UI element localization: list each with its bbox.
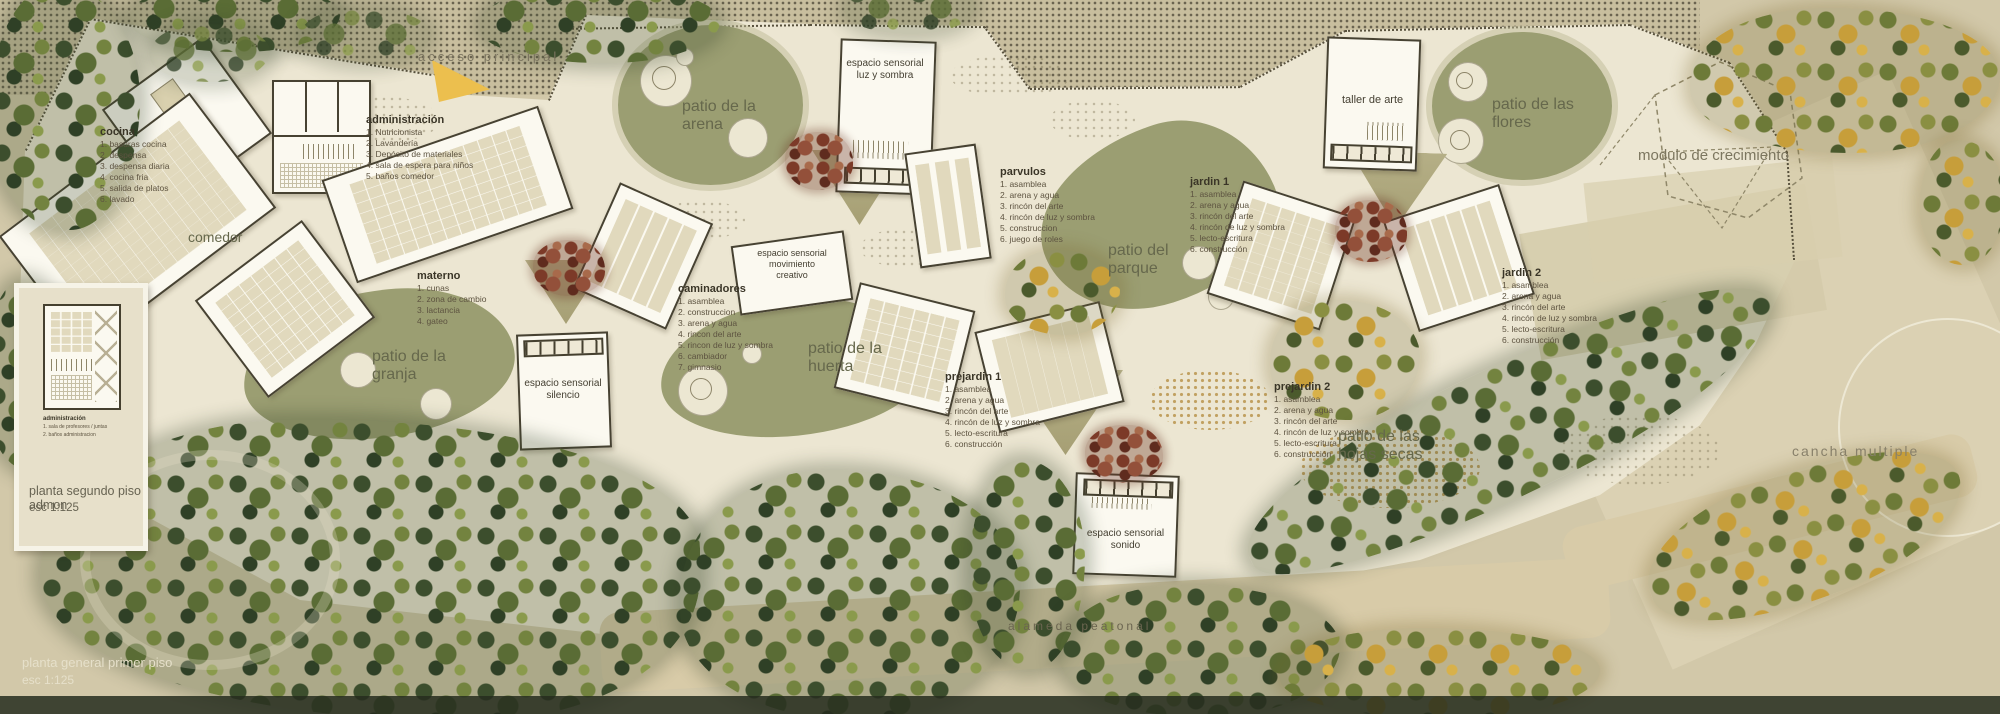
bottom-border-strip [0,696,2000,714]
legend-item: 5. rincon de luz y sombra [678,340,828,351]
inset-banos [51,375,92,399]
legend-item: 4. gateo [417,316,567,327]
pebble [420,388,452,420]
inset-second-floor-plan: administración 1. sala de profesores / j… [14,283,148,551]
label-sens-sonido: espacio sensorial sonido [1078,528,1173,552]
legend-item: 6. construcción [1190,244,1340,255]
legend-item: 3. rincón del arte [1502,302,1652,313]
legend-item: 3. rincón del arte [945,406,1095,417]
inset-stair [51,359,92,371]
legend-item: 2. arena y agua [1190,200,1340,211]
pebble [340,352,376,388]
service-cells [1330,143,1412,163]
pebble [690,378,712,400]
ground-stipple [1050,100,1135,140]
legend-title: parvulos [1000,166,1150,178]
stair-strip [1092,496,1152,510]
tree-grove-autumn [1690,8,2000,153]
label-sens-silencio: espacio sensorial silencio [518,378,608,402]
legend-item: 2. construccion [678,307,828,318]
label-taller-de-arte: taller de arte [1342,94,1403,106]
legend-item: 2. Lavandería [366,138,516,149]
legend-item: 1. asamblea [945,384,1095,395]
legend-item: 3. rincón del arte [1274,416,1424,427]
label-cancha-multiple: cancha multiple [1792,444,1919,460]
tree-grove [680,470,1020,714]
legend-parvulos: parvulos 1. asamblea 2. arena y agua 3. … [1000,166,1150,245]
site-plan-canvas: acceso principal alameda peatonal cancha… [0,0,2000,714]
legend-prejardin-1: prejardin 1 1. asamblea 2. arena y agua … [945,371,1095,450]
label-patio-granja: patio de la granja [372,348,446,384]
legend-title: cocina [100,126,250,138]
building-espacio-sensorial-sonido [1072,472,1179,578]
dry-leaves-scatter [1150,370,1270,430]
red-tree [1085,425,1163,483]
legend-jardin-1: jardin 1 1. asamblea 2. arena y agua 3. … [1190,176,1340,255]
label-patio-parque: patio del parque [1108,242,1169,278]
legend-item: 1. cunas [417,283,567,294]
pebble [1450,130,1470,150]
label-patio-huerta: patio de la huerta [808,340,882,376]
legend-item: 6. cambiador [678,351,828,362]
legend-title: administración [366,114,516,126]
legend-item: 2. arena y agua [1000,190,1150,201]
label-sens-mov-creativo: espacio sensorial movimiento creativo [742,248,842,280]
drawing-title: planta general primer piso [22,655,172,670]
legend-title: materno [417,270,567,282]
parvulos-furniture [915,158,981,254]
label-comedor: comedor [188,230,242,246]
label-modulo-crecimiento: modulo de crecimiento [1638,148,1789,165]
legend-item: 2. arena y agua [945,395,1095,406]
legend-item: 3. rincón del arte [1000,201,1150,212]
legend-item: 6. construcción [1502,335,1652,346]
pebble [1456,72,1473,89]
label-sens-luz-sombra: espacio sensorial luz y sombra [835,58,935,82]
label-patio-arena: patio de la arena [682,98,756,134]
pebble [652,66,676,90]
tree-grove-autumn [1005,250,1120,335]
legend-item: 5. baños comedor [366,171,516,182]
legend-item: 5. construccion [1000,223,1150,234]
legend-item: 6. construcción [945,439,1095,450]
legend-item: 4. rincón de luz y sombra [1190,222,1340,233]
legend-item: 5. lecto-escritura [1190,233,1340,244]
label-patio-hojas-secas: patio de las hojas secas [1338,428,1423,464]
label-patio-flores: patio de las flores [1492,96,1574,132]
label-acceso-principal: acceso principal [418,50,559,65]
red-tree [785,132,853,190]
legend-item: 2. arena y agua [1502,291,1652,302]
legend-item: 4. cocina fria [100,172,250,183]
legend-item: 5. salida de platos [100,183,250,194]
stair-strip [1366,122,1403,141]
legend-materno: materno 1. cunas 2. zona de cambio 3. la… [417,270,567,327]
legend-item: 2. arena y agua [1274,405,1424,416]
inset-legend-item: 1. sala de profesores / juntas [43,424,107,431]
stair-strip [852,140,908,160]
legend-item: 3. lactancia [417,305,567,316]
ground-stipple [950,55,1070,97]
jardin2-furniture [1400,201,1517,315]
inset-caption-scale: esc 1:125 [29,502,79,514]
inset-legend-title: administración [43,416,86,422]
legend-item: 1. asamblea [1190,189,1340,200]
legend-item: 5. lecto-escritura [1502,324,1652,335]
legend-title: caminadores [678,283,828,295]
legend-item: 7. gimnasio [678,362,828,373]
legend-item: 4. rincon del arte [678,329,828,340]
inset-cross-hatch [95,308,117,402]
tree-grove [300,8,430,63]
legend-item: 4. rincón de luz y sombra [1000,212,1150,223]
legend-item: 1. asamblea [1000,179,1150,190]
legend-caminadores: caminadores 1. asamblea 2. construccion … [678,283,828,373]
legend-item: 1. basuras cocina [100,139,250,150]
legend-item: 4. rincón de luz y sombra [1502,313,1652,324]
legend-administracion: administración 1. Nutricionista 2. Lavan… [366,114,516,182]
legend-title: jardin 2 [1502,267,1652,279]
legend-item: 1. Nutricionista [366,127,516,138]
drawing-scale: esc 1:125 [22,673,172,687]
inset-furniture [51,312,92,352]
legend-item: 3. rincón del arte [1190,211,1340,222]
service-cells [523,338,603,358]
legend-item: 1. asamblea [1502,280,1652,291]
legend-jardin-2: jardin 2 1. asamblea 2. arena y agua 3. … [1502,267,1652,346]
legend-item: 1. asamblea [678,296,828,307]
legend-cocina: cocina 1. basuras cocina 2. despensa 3. … [100,126,250,205]
tree-grove [150,24,270,82]
legend-item: 4. sala de espera para niños [366,160,516,171]
legend-item: 3. despensa diaria [100,161,250,172]
drawing-title-block: planta general primer piso esc 1:125 [22,655,172,687]
legend-title: jardin 1 [1190,176,1340,188]
tree-grove-autumn [1920,140,2000,265]
inset-legend-item: 2. baños administracion [43,432,96,439]
label-alameda-peatonal: alameda peatonal [1008,620,1151,633]
legend-item: 2. zona de cambio [417,294,567,305]
legend-item: 2. despensa [100,150,250,161]
inset-mini-plan [43,304,121,410]
legend-item: 3. Depósito de materiales [366,149,516,160]
stair-strip [303,144,355,159]
legend-title: prejardin 2 [1274,381,1424,393]
legend-title: prejardin 1 [945,371,1095,383]
legend-item: 4. rincón de luz y sombra [945,417,1095,428]
red-tree [1335,200,1407,262]
legend-item: 5. lecto-escritura [945,428,1095,439]
legend-item: 1. asamblea [1274,394,1424,405]
legend-item: 3. arena y agua [678,318,828,329]
legend-item: 6. lavado [100,194,250,205]
